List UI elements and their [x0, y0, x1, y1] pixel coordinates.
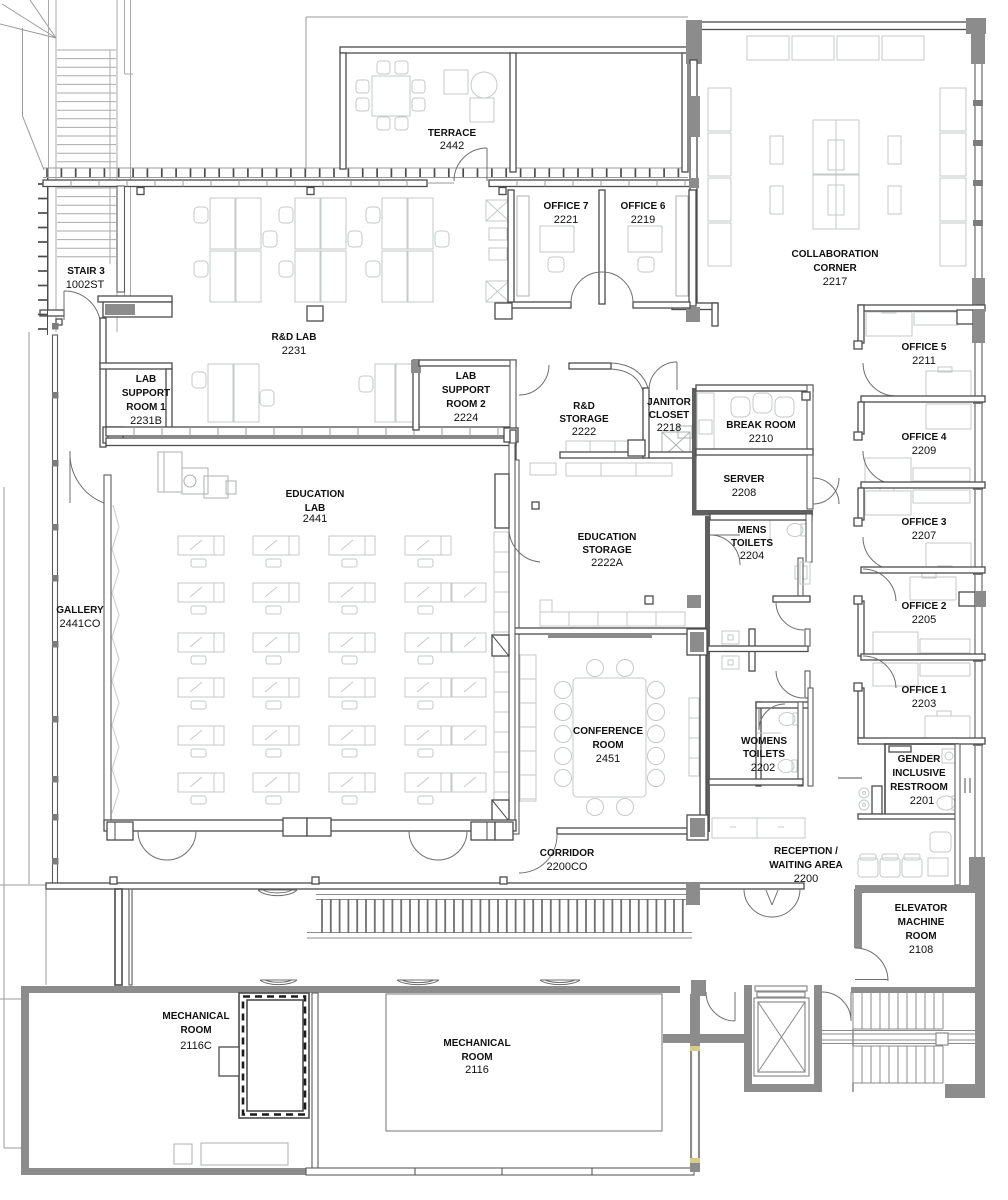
svg-text:RESTROOM: RESTROOM [890, 782, 948, 793]
svg-text:CORNER: CORNER [813, 263, 857, 274]
svg-text:2441CO: 2441CO [60, 618, 101, 630]
svg-text:OFFICE 6: OFFICE 6 [620, 201, 665, 212]
svg-text:CLOSET: CLOSET [649, 410, 690, 421]
svg-text:INCLUSIVE: INCLUSIVE [892, 768, 946, 779]
svg-text:STAIR 3: STAIR 3 [67, 266, 105, 277]
svg-text:MECHANICAL: MECHANICAL [443, 1038, 510, 1049]
svg-text:2201: 2201 [910, 795, 934, 807]
svg-text:2231: 2231 [282, 345, 306, 357]
svg-text:2442: 2442 [440, 140, 464, 152]
svg-text:1002ST: 1002ST [66, 279, 105, 291]
svg-text:OFFICE 3: OFFICE 3 [901, 517, 946, 528]
svg-text:2108: 2108 [909, 944, 933, 956]
svg-text:2210: 2210 [749, 433, 773, 445]
svg-text:GENDER: GENDER [898, 754, 942, 765]
svg-text:2200CO: 2200CO [547, 861, 588, 873]
svg-text:2231B: 2231B [130, 415, 162, 427]
svg-text:RECEPTION /: RECEPTION / [774, 846, 838, 857]
svg-text:2219: 2219 [631, 214, 655, 226]
svg-text:2222: 2222 [572, 426, 596, 438]
svg-text:2451: 2451 [596, 753, 620, 765]
svg-text:2217: 2217 [823, 276, 847, 288]
svg-text:MENS: MENS [738, 525, 767, 536]
svg-text:2224: 2224 [454, 412, 478, 424]
svg-text:EDUCATION: EDUCATION [578, 532, 637, 543]
svg-text:LAB: LAB [136, 374, 157, 385]
svg-text:2202: 2202 [751, 762, 775, 774]
svg-text:ROOM: ROOM [592, 740, 623, 751]
svg-text:OFFICE 5: OFFICE 5 [901, 342, 946, 353]
svg-text:SERVER: SERVER [724, 474, 766, 485]
svg-text:2207: 2207 [912, 530, 936, 542]
svg-text:2209: 2209 [912, 445, 936, 457]
svg-text:2441: 2441 [303, 513, 327, 525]
svg-text:COLLABORATION: COLLABORATION [791, 249, 878, 260]
svg-text:MACHINE: MACHINE [898, 917, 945, 928]
svg-text:2204: 2204 [740, 550, 764, 562]
svg-text:TOILETS: TOILETS [731, 538, 773, 549]
svg-text:WAITING AREA: WAITING AREA [769, 860, 843, 871]
svg-text:MECHANICAL: MECHANICAL [162, 1011, 229, 1022]
svg-text:OFFICE 4: OFFICE 4 [901, 432, 946, 443]
svg-text:ROOM: ROOM [180, 1025, 211, 1036]
svg-text:2116: 2116 [465, 1064, 489, 1076]
svg-text:ROOM: ROOM [905, 931, 936, 942]
svg-text:ROOM 1: ROOM 1 [126, 402, 166, 413]
svg-text:LAB: LAB [456, 371, 477, 382]
svg-text:WOMENS: WOMENS [741, 736, 787, 747]
svg-text:R&D LAB: R&D LAB [272, 332, 317, 343]
svg-text:2208: 2208 [732, 487, 756, 499]
svg-text:STORAGE: STORAGE [559, 414, 609, 425]
svg-text:ELEVATOR: ELEVATOR [895, 903, 949, 914]
svg-text:SUPPORT: SUPPORT [122, 388, 170, 399]
svg-text:2205: 2205 [912, 614, 936, 626]
svg-text:SUPPORT: SUPPORT [442, 385, 490, 396]
svg-text:BREAK ROOM: BREAK ROOM [726, 420, 795, 431]
svg-text:ROOM 2: ROOM 2 [446, 399, 486, 410]
svg-text:CONFERENCE: CONFERENCE [573, 726, 643, 737]
svg-text:2203: 2203 [912, 698, 936, 710]
svg-text:2200: 2200 [794, 873, 818, 885]
svg-text:TOILETS: TOILETS [743, 749, 785, 760]
svg-text:2222A: 2222A [591, 557, 623, 569]
svg-text:2116C: 2116C [180, 1040, 212, 1052]
svg-text:2221: 2221 [554, 214, 578, 226]
svg-text:2211: 2211 [912, 355, 936, 367]
svg-text:STORAGE: STORAGE [582, 545, 632, 556]
svg-text:R&D: R&D [573, 401, 595, 412]
svg-text:OFFICE 2: OFFICE 2 [901, 601, 946, 612]
svg-text:JANITOR: JANITOR [647, 397, 691, 408]
svg-text:OFFICE 7: OFFICE 7 [543, 201, 588, 212]
svg-text:TERRACE: TERRACE [428, 128, 477, 139]
svg-text:CORRIDOR: CORRIDOR [540, 848, 595, 859]
svg-text:GALLERY: GALLERY [56, 605, 104, 616]
svg-text:ROOM: ROOM [461, 1052, 492, 1063]
svg-text:EDUCATION: EDUCATION [286, 489, 345, 500]
svg-text:OFFICE 1: OFFICE 1 [901, 685, 946, 696]
svg-text:2218: 2218 [657, 422, 681, 434]
